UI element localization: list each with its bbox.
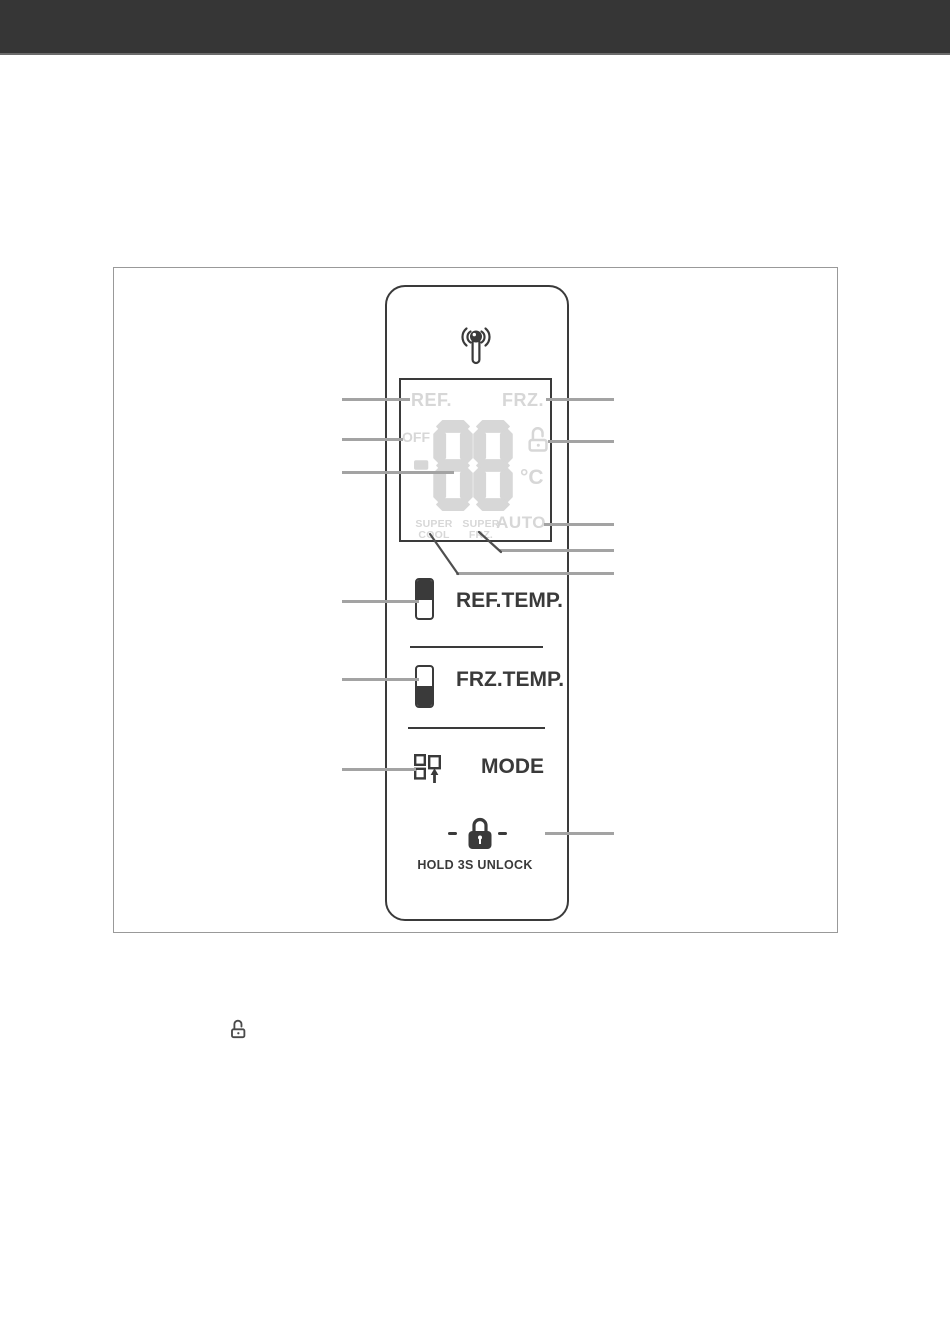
divider xyxy=(408,727,545,729)
lcd-ref-label: REF. xyxy=(411,390,452,411)
super-cool-line2: COOL xyxy=(409,530,459,541)
divider xyxy=(410,646,543,648)
callout-line-lock xyxy=(545,832,614,835)
manual-page: { "figure": { "panel": { "display": { "r… xyxy=(0,0,950,1344)
callout-line-ref xyxy=(342,398,410,401)
frz-temp-toggle-icon xyxy=(415,665,434,708)
unlock-icon xyxy=(230,1019,247,1039)
lock-icon xyxy=(465,815,495,852)
auto-indicator: AUTO xyxy=(496,513,546,533)
toggle-fill xyxy=(417,580,432,600)
callout-line-frz-temp xyxy=(342,678,419,681)
mode-squares-icon xyxy=(414,754,442,784)
toggle-fill xyxy=(417,686,432,706)
ref-temp-button-label: REF.TEMP. xyxy=(456,588,563,614)
lock-dash-left xyxy=(448,832,457,835)
unlock-icon xyxy=(527,427,550,452)
callout-line-ref-temp xyxy=(342,600,419,603)
minus-segment xyxy=(414,460,428,470)
callout-line-frz xyxy=(546,398,614,401)
lcd-frz-label: FRZ. xyxy=(502,390,544,411)
callout-line-display xyxy=(342,471,454,474)
callout-line-auto xyxy=(544,523,614,526)
callout-line-unlock xyxy=(548,440,614,443)
mode-button-label: MODE xyxy=(481,754,544,780)
wifi-antenna-icon xyxy=(454,325,498,367)
frz-temp-button-label: FRZ.TEMP. xyxy=(456,667,564,693)
callout-line-super-frz xyxy=(499,549,614,552)
celsius-unit: °C xyxy=(520,466,544,490)
callout-line-off xyxy=(342,438,403,441)
lcd-display: REF. FRZ. OFF xyxy=(399,378,552,542)
ref-temp-toggle-icon xyxy=(415,578,434,620)
super-cool-line1: SUPER xyxy=(409,519,459,530)
super-cool-indicator: SUPER COOL xyxy=(409,519,459,540)
chapter-header-bar xyxy=(0,0,950,55)
hold-unlock-label: HOLD 3S UNLOCK xyxy=(410,858,540,872)
callout-line-super-cool xyxy=(456,572,614,575)
lock-dash-right xyxy=(498,832,507,835)
callout-line-mode xyxy=(342,768,416,771)
seven-segment-display xyxy=(414,418,513,513)
control-panel-figure: REF. FRZ. OFF xyxy=(113,267,838,933)
